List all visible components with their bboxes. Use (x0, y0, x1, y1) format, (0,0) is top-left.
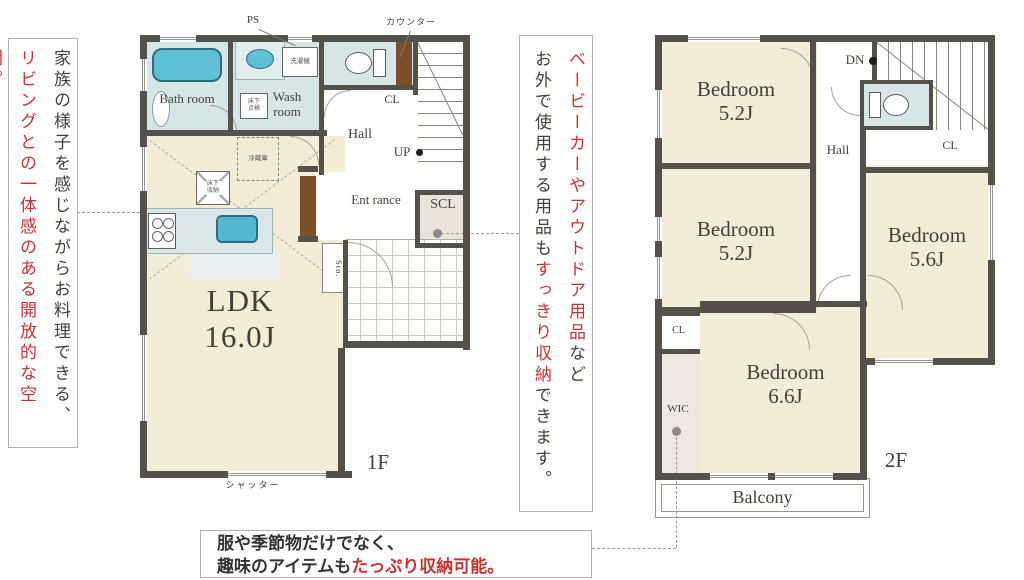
bedroom-2-label: Bedroom 5.2J (665, 217, 807, 265)
bathtub (152, 48, 222, 82)
bedroom-2-name: Bedroom (665, 217, 807, 241)
note-left-black: 家族の様子を感じながらお料理できる、 (51, 49, 70, 427)
note-middle-black3: できます。 (532, 386, 551, 491)
entrance-label: Ent rance (347, 193, 405, 208)
toilet-tank-1f (373, 49, 386, 77)
note-left: 家族の様子を感じながらお料理できる、 リビングとの一体感のある開放的な空間。 (8, 38, 78, 448)
fridge-label: 冷蔵庫 (248, 155, 268, 162)
bedroom-1-label: Bedroom 5.2J (665, 77, 807, 125)
fridge-outline: 冷蔵庫 (237, 137, 279, 181)
balcony: Balcony (655, 478, 870, 518)
stair-storage-label: Sto. (325, 249, 343, 289)
up-label: UP (387, 145, 417, 160)
bedroom-2-size: 5.2J (665, 241, 807, 265)
bedroom-3-name: Bedroom (863, 223, 991, 247)
toilet-door-arc-1f (324, 90, 351, 117)
bedroom-3-size: 5.6J (863, 247, 991, 271)
connector-left-note (77, 212, 140, 213)
closet-cl-2f-left-label: CL (657, 325, 700, 337)
shutter-label: シャッター (218, 480, 288, 490)
note-bottom-line1: 服や季節物だけでなく、 (217, 533, 591, 556)
wic-label: WIC (657, 403, 699, 416)
note-bottom-line2: 趣味のアイテムもたっぷり収納可能。 (217, 556, 591, 579)
toilet-bowl-1f (345, 52, 372, 74)
wic-leader-dot (672, 427, 681, 436)
scl-label: SCL (420, 197, 466, 213)
kitchen-sink (216, 215, 258, 243)
washer-label: 洗濯機 (290, 58, 310, 65)
bedroom-4-name: Bedroom (713, 360, 858, 384)
bedroom-1-name: Bedroom (665, 77, 807, 101)
floor2-plan: DN Hall CL CL WIC Bedroom 5.2J Bedroom 5… (655, 35, 995, 483)
dn-label: DN (840, 53, 870, 68)
ldk-name: LDK (170, 283, 310, 319)
floor1-label: 1F (356, 450, 400, 474)
toilet-tank-2f (869, 92, 881, 118)
stove (148, 213, 176, 249)
ldk-label: LDK 16.0J (170, 283, 310, 354)
note-middle: ベービーカーやアウトドア用品など お外で使用する用品もすっきり収納できます。 (519, 35, 593, 512)
hall-1f-label: Hall (335, 127, 385, 143)
dn-dot (869, 57, 877, 65)
wash-basin (246, 49, 274, 69)
floor2-label: 2F (874, 448, 918, 472)
note-middle-black2: お外で使用する用品も (532, 50, 551, 260)
up-dot (416, 149, 423, 156)
counter-label: カウンター (383, 17, 439, 27)
connector-wic-vertical (676, 437, 677, 548)
note-bottom: 服や季節物だけでなく、 趣味のアイテムもたっぷり収納可能。 (200, 530, 592, 578)
bedroom-4-size: 6.6J (713, 384, 858, 408)
closet-cl-2f-top-label: CL (910, 139, 990, 153)
connector-wic-horizontal (592, 548, 676, 549)
bathroom-label: Bath room (158, 92, 216, 107)
closet-cl-1f-label: CL (370, 93, 414, 107)
bedroom-3-label: Bedroom 5.6J (863, 223, 991, 271)
hall-2f-label: Hall (817, 143, 859, 158)
note-left-red: リビングとの一体感のある開放的な空間。 (0, 49, 36, 406)
entrance-door-panel (300, 176, 316, 236)
connector-scl-note (441, 233, 519, 234)
ps-label: PS (240, 14, 266, 27)
toilet-bowl-2f (883, 94, 909, 116)
washroom-label: Wash room (258, 90, 316, 120)
floor-storage: 床下収納 (196, 171, 230, 205)
note-middle-black1: など (566, 344, 585, 386)
stairs-1f (418, 42, 463, 170)
ldk-size: 16.0J (170, 319, 310, 355)
balcony-label: Balcony (656, 487, 869, 508)
floorplan-page: 家族の様子を感じながらお料理できる、 リビングとの一体感のある開放的な空間。 ベ… (0, 0, 1024, 580)
note-middle-red2: すっきり収納 (532, 260, 551, 386)
bedroom-4-label: Bedroom 6.6J (713, 360, 858, 408)
bedroom-1-size: 5.2J (665, 101, 807, 125)
washing-machine: 洗濯機 (282, 47, 318, 77)
floor1-plan: 洗濯機 床下点検 冷蔵庫 床下収納 (140, 35, 470, 478)
note-middle-red1: ベービーカーやアウトドア用品 (566, 50, 585, 344)
scl-leader-dot (433, 229, 442, 238)
toilet2-door-arc (831, 87, 860, 116)
floor-storage-label: 床下収納 (206, 181, 221, 194)
